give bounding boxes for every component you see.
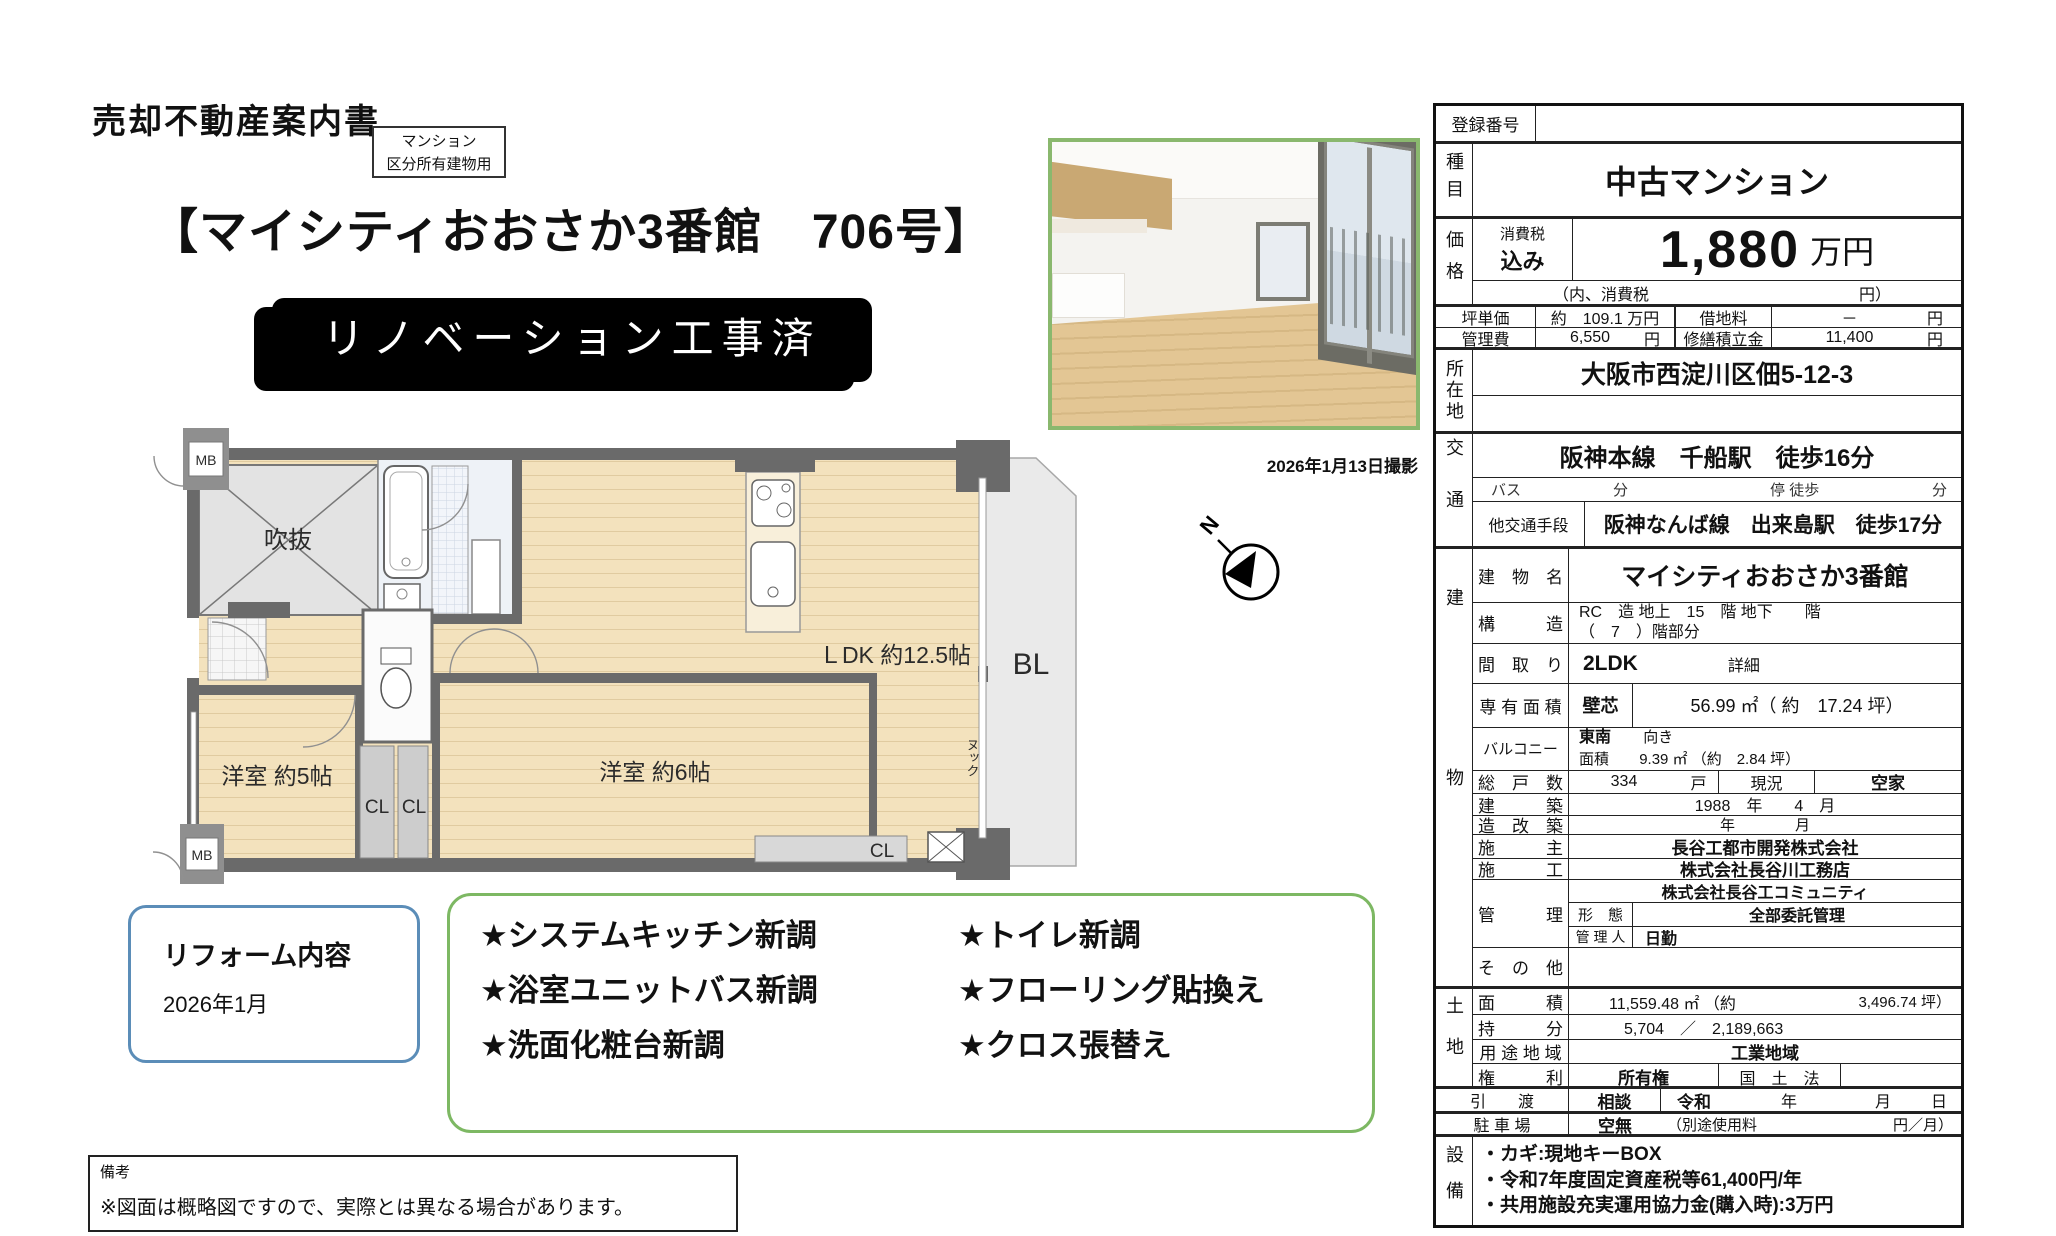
bathtub-icon: [384, 466, 428, 578]
parking-note-right: 円／月）: [1893, 1114, 1953, 1135]
location-line2: [1473, 396, 1961, 431]
price-unit: 万円: [1810, 227, 1874, 273]
handover-month: 月: [1875, 1088, 1891, 1112]
land-area-label: 面 積: [1473, 989, 1569, 1014]
handover-year: 年: [1781, 1088, 1797, 1112]
kitchen: [746, 472, 800, 632]
price-value: 1,880: [1660, 220, 1800, 280]
other-transport-value: 阪神なんば線 出来島駅 徒歩17分: [1585, 502, 1961, 546]
row-registration: 登録番号: [1436, 106, 1961, 144]
bus-stop: 停 徒歩: [1770, 479, 1819, 500]
equipment-line: ・共用施設充実運用協力金(購入時):3万円: [1481, 1193, 1953, 1219]
row-layout: 間 取 り 2LDK 詳細: [1473, 644, 1961, 684]
kokudo-value: [1841, 1064, 1961, 1089]
developer-label: 施 主: [1473, 835, 1569, 858]
row-unit-price: 坪単価 約 109.1 万円 借地料 － 円: [1436, 307, 1961, 328]
mgmt-fee-cell: 6,550 円: [1536, 328, 1676, 347]
stove-icon: [752, 480, 794, 526]
balcony-label: BL: [1013, 648, 1050, 681]
row-balcony: バルコニー 東南 向き 面積 9.39 ㎡ （約 2.84 坪）: [1473, 728, 1961, 771]
row-land-area: 面 積 11,559.48 ㎡ （約 3,496.74 坪）: [1473, 989, 1961, 1015]
layout-value: 2LDK: [1583, 652, 1638, 676]
balcony-row-label: バルコニー: [1473, 728, 1569, 770]
balcony-window: [979, 478, 986, 838]
row-parking: 駐 車 場 空無 （別途使用料 円／月）: [1436, 1114, 1961, 1137]
price-tax-note-right: 円）: [1859, 281, 1891, 305]
price-tax-cell: 消費税 込み: [1473, 219, 1573, 280]
bedroom5-label: 洋室 約5帖: [221, 763, 332, 789]
land-area-tsubo: 3,496.74 坪）: [1858, 991, 1951, 1012]
meter-box-top-label: MB: [196, 452, 217, 468]
management-person-label: 管 理 人: [1569, 927, 1633, 947]
other-value: [1569, 948, 1961, 986]
section-equipment: 設備 ・カギ:現地キーBOX ・令和7年度固定資産税等61,400円/年 ・共用…: [1436, 1137, 1961, 1225]
reform-row-1: ★システムキッチン新調 ★トイレ新調: [480, 920, 1372, 951]
reform-items-box: ★システムキッチン新調 ★トイレ新調 ★浴室ユニットバス新調 ★フローリング貼換…: [447, 893, 1375, 1133]
kokudo-label: 国 土 法: [1719, 1064, 1841, 1089]
structure-line2: （ 7 ）階部分: [1579, 623, 1961, 643]
building-label: 建物: [1436, 549, 1473, 986]
status-label: 現況: [1719, 771, 1815, 793]
reform-item: ★トイレ新調: [958, 920, 1141, 951]
bedroom5-window: [191, 712, 196, 832]
layout-label: 間 取 り: [1473, 644, 1569, 683]
building-name-label: 建 物 名: [1473, 549, 1569, 602]
reform-row-3: ★洗面化粧台新調 ★クロス張替え: [480, 1030, 1372, 1061]
registration-value: [1536, 106, 1961, 141]
unit-price-label: 坪単価: [1436, 307, 1536, 327]
land-rent-cell: － 円: [1772, 307, 1961, 327]
property-table: 登録番号 種目 中古マンション 価格 消費税 込み 1,880 万円 （内、消費…: [1433, 103, 1964, 1228]
reform-item: ★システムキッチン新調: [480, 920, 958, 951]
row-location: 所在地 大阪市西淀川区佃5-12-3: [1436, 350, 1961, 434]
closet-bottom-label: CL: [870, 841, 894, 862]
balcony-area-label: 面積: [1579, 751, 1609, 768]
other-label: そ の 他: [1473, 948, 1569, 986]
status-value: 空家: [1815, 771, 1961, 793]
mgmt-fee-value: 6,550: [1536, 329, 1644, 347]
share-value: 5,704 ／ 2,189,663: [1569, 1015, 1961, 1039]
repair-fund-cell: 11,400 円: [1772, 328, 1961, 347]
closet-right-label: CL: [402, 797, 426, 818]
row-structure: 構 造 RC 造 地上 15 階 地下 階 （ 7 ）階部分: [1473, 603, 1961, 644]
units-value: 334: [1569, 771, 1679, 793]
balcony-direction-suffix: 向き: [1643, 729, 1673, 746]
repair-fund-label: 修繕積立金: [1676, 328, 1772, 347]
category-label: 種目: [1436, 144, 1473, 216]
location-label: 所在地: [1436, 350, 1473, 431]
closet-left-label: CL: [365, 797, 389, 818]
reform-date: 2026年1月: [163, 987, 417, 1019]
price-tax-note-left: （内、消費税: [1553, 281, 1649, 305]
row-rebuilt: 造 改 築 年 月: [1473, 816, 1961, 835]
repair-fund-value: 11,400: [1772, 329, 1927, 347]
meter-box-bottom-label: MB: [192, 847, 213, 863]
balcony-area-value: 9.39 ㎡ （約 2.84 坪）: [1639, 751, 1800, 768]
property-photo: [1048, 138, 1420, 430]
category-value: 中古マンション: [1473, 144, 1961, 216]
row-management: 管 理 株式会社長谷工コミュニティ 形 態 全部委託管理 管 理 人 日勤: [1473, 880, 1961, 948]
structure-line1: RC 造 地上 15 階 地下 階: [1579, 603, 1961, 623]
land-rent-label: 借地料: [1676, 307, 1772, 327]
price-tax-label2: 込み: [1500, 244, 1544, 276]
bathroom: [378, 458, 518, 618]
land-rent-value: －: [1772, 307, 1927, 327]
row-share: 持 分 5,704 ／ 2,189,663: [1473, 1015, 1961, 1040]
handover-label: 引 渡: [1436, 1089, 1569, 1111]
toilet-room: [363, 610, 432, 742]
price-label: 価格: [1436, 219, 1473, 304]
toilet-icon: [381, 668, 411, 708]
zoning-label: 用 途 地 域: [1473, 1040, 1569, 1063]
units-unit: 戸: [1679, 771, 1719, 793]
price-tax-label1: 消費税: [1500, 223, 1545, 244]
units-label: 総 戸 数: [1473, 771, 1569, 793]
transport-label: 交通: [1436, 434, 1473, 546]
shower-room: [432, 466, 468, 614]
structure-label: 構 造: [1473, 603, 1569, 643]
zoning-value: 工業地域: [1569, 1040, 1961, 1063]
reform-item: ★フローリング貼換え: [958, 975, 1265, 1006]
row-zoning: 用 途 地 域 工業地域: [1473, 1040, 1961, 1064]
land-label: 土地: [1436, 989, 1473, 1086]
rebuilt-value: 年 月: [1569, 816, 1961, 834]
photo-balcony-rail: [1330, 226, 1406, 335]
bedroom6-label: 洋室 約6帖: [599, 759, 710, 785]
built-value: 1988 年 4 月: [1569, 794, 1961, 815]
row-price: 価格 消費税 込み 1,880 万円 （内、消費税 円）: [1436, 219, 1961, 307]
laundry-space: [472, 540, 500, 614]
equipment-line: ・カギ:現地キーBOX: [1481, 1142, 1953, 1168]
repair-fund-unit: 円: [1927, 328, 1961, 347]
unit-price-value: 約 109.1 万円: [1536, 307, 1676, 327]
mgmt-fee-unit: 円: [1644, 328, 1674, 347]
land-area-value: 11,559.48 ㎡ （約: [1609, 990, 1736, 1014]
reform-item: ★クロス張替え: [958, 1030, 1172, 1061]
bus-stop-min: 分: [1932, 479, 1947, 500]
bus-label: バス: [1491, 479, 1521, 500]
compass-icon: N: [1196, 512, 1292, 612]
handover-value: 相談: [1569, 1089, 1661, 1111]
row-transport: 交通 阪神本線 千船駅 徒歩16分 バス 分 停 徒歩 分 他交通手段 阪神なん…: [1436, 434, 1961, 549]
renovation-banner: リノベーション工事済: [272, 298, 872, 382]
ldk-label: ＬDK 約12.5帖: [819, 642, 971, 668]
row-developer: 施 主 長谷工都市開発株式会社: [1473, 835, 1961, 859]
share-label: 持 分: [1473, 1015, 1569, 1039]
mgmt-fee-label: 管理費: [1436, 328, 1536, 347]
reform-item: ★洗面化粧台新調: [480, 1030, 958, 1061]
property-type-line1: マンション: [374, 131, 504, 154]
handover-day: 日: [1931, 1088, 1947, 1112]
photo-caption: 2026年1月13日撮影: [1160, 452, 1418, 477]
row-building-name: 建 物 名 マイシティおおさか3番館: [1473, 549, 1961, 603]
shaft-box: [928, 832, 964, 862]
reform-title: リフォーム内容: [163, 934, 417, 973]
nook-label: ヌック: [965, 738, 980, 777]
section-building: 建物 建 物 名 マイシティおおさか3番館 構 造 RC 造 地上 15 階 地…: [1436, 549, 1961, 989]
layout-detail: 詳細: [1728, 652, 1760, 676]
rebuilt-label: 造 改 築: [1473, 816, 1569, 834]
photo-far-window: [1256, 222, 1311, 302]
reform-item: ★浴室ユニットバス新調: [480, 975, 958, 1006]
management-company: 株式会社長谷工コミュニティ: [1569, 880, 1961, 903]
transport-main: 阪神本線 千船駅 徒歩16分: [1473, 434, 1961, 478]
transport-bus-row: バス 分 停 徒歩 分: [1473, 478, 1961, 502]
builder-label: 施 工: [1473, 859, 1569, 879]
photo-kitchen-hood: [1052, 219, 1147, 233]
reform-row-2: ★浴室ユニットバス新調 ★フローリング貼換え: [480, 975, 1372, 1006]
handover-era: 令和: [1677, 1088, 1711, 1113]
other-transport-label: 他交通手段: [1473, 502, 1585, 546]
remarks-box: 備考 ※図面は概略図ですので、実際とは異なる場合があります。: [88, 1155, 738, 1232]
registration-label: 登録番号: [1436, 106, 1536, 141]
photo-kitchen-counter: [1052, 273, 1125, 318]
management-person-value: 日勤: [1633, 927, 1961, 947]
row-rights: 権 利 所有権 国 土 法: [1473, 1064, 1961, 1089]
row-built: 建 築 1988 年 4 月: [1473, 794, 1961, 816]
building-name-value: マイシティおおさか3番館: [1569, 549, 1961, 602]
row-other: そ の 他: [1473, 948, 1961, 986]
management-label: 管 理: [1473, 880, 1569, 947]
bus-min: 分: [1613, 479, 1628, 500]
area-method: 壁芯: [1569, 684, 1633, 726]
section-land: 土地 面 積 11,559.48 ㎡ （約 3,496.74 坪） 持 分 5,…: [1436, 989, 1961, 1089]
management-form-label: 形 態: [1569, 903, 1633, 926]
location-value: 大阪市西淀川区佃5-12-3: [1473, 350, 1961, 396]
price-value-cell: 1,880 万円: [1573, 219, 1961, 280]
remarks-label: 備考: [100, 1161, 726, 1182]
reform-info-box: リフォーム内容 2026年1月: [128, 905, 420, 1063]
built-label: 建 築: [1473, 794, 1569, 815]
property-type-box: マンション 区分所有建物用: [372, 126, 506, 178]
parking-note-left: （別途使用料: [1667, 1114, 1757, 1135]
builder-value: 株式会社長谷川工務店: [1569, 859, 1961, 879]
developer-value: 長谷工都市開発株式会社: [1569, 835, 1961, 858]
sink-icon: [751, 542, 795, 606]
parking-value: 空無: [1569, 1114, 1661, 1134]
compass-north-label: N: [1196, 512, 1224, 539]
remarks-text: ※図面は概略図ですので、実際とは異なる場合があります。: [100, 1191, 726, 1220]
parking-label: 駐 車 場: [1436, 1114, 1569, 1134]
property-heading: 【マイシティおおさか3番館 706号】: [150, 192, 993, 262]
balcony-direction: 東南: [1579, 729, 1611, 746]
management-form-value: 全部委託管理: [1633, 903, 1961, 926]
void-label: 吹抜: [264, 527, 312, 554]
row-units: 総 戸 数 334 戸 現況 空家: [1473, 771, 1961, 794]
rights-value: 所有権: [1569, 1064, 1719, 1089]
floor-plan: 吹抜 洋室 約5帖 CL CL 洋室 約6帖 ＬDK 約12.5帖 BL ヌック…: [150, 420, 1090, 900]
equipment-line: ・令和7年度固定資産税等61,400円/年: [1481, 1168, 1953, 1194]
land-rent-unit: 円: [1927, 307, 1961, 327]
row-handover: 引 渡 相談 令和 年 月 日: [1436, 1089, 1961, 1114]
row-category: 種目 中古マンション: [1436, 144, 1961, 219]
row-builder: 施 工 株式会社長谷川工務店: [1473, 859, 1961, 880]
area-label: 専 有 面 積: [1473, 684, 1569, 726]
area-value: 56.99 ㎡（ 約 17.24 坪）: [1633, 684, 1961, 726]
equipment-label: 設備: [1436, 1137, 1473, 1225]
row-exclusive-area: 専 有 面 積 壁芯 56.99 ㎡（ 約 17.24 坪）: [1473, 684, 1961, 727]
rights-label: 権 利: [1473, 1064, 1569, 1089]
row-mgmt-fee: 管理費 6,550 円 修繕積立金 11,400 円: [1436, 328, 1961, 350]
document-title: 売却不動産案内書: [92, 94, 380, 143]
property-type-line2: 区分所有建物用: [374, 154, 504, 177]
